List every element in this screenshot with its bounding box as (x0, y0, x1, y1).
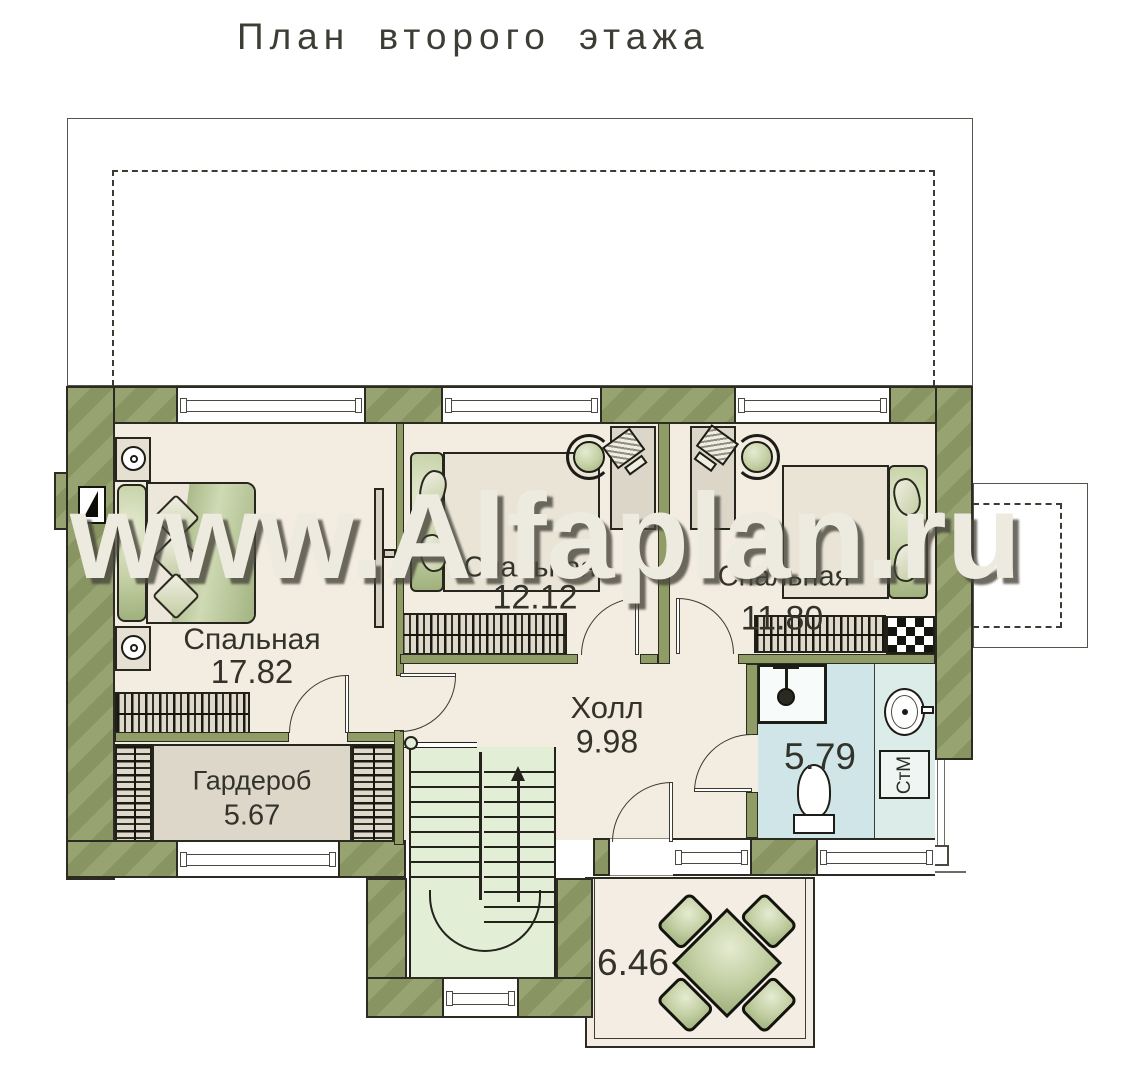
page-title: План второго этажа (237, 16, 710, 58)
window (673, 838, 750, 876)
partition-wall (738, 654, 935, 664)
wall (66, 386, 115, 880)
window (444, 977, 517, 1018)
room-area: 5.67 (224, 800, 280, 833)
door-leaf (400, 673, 456, 677)
roof-dashed-line (112, 170, 935, 386)
window (736, 386, 889, 424)
lamp-icon (121, 635, 146, 660)
door-leaf (676, 598, 680, 654)
door-leaf (345, 675, 349, 733)
door-leaf (669, 782, 673, 842)
partition-wall (640, 654, 658, 664)
clothes-rail (115, 692, 250, 734)
wall (517, 977, 593, 1018)
wall (66, 840, 178, 878)
room-label: Гардероб (193, 766, 312, 797)
wall (338, 840, 406, 878)
partition-wall (746, 792, 758, 838)
partition-wall (115, 732, 289, 742)
wall (364, 386, 443, 424)
shower-rose (777, 688, 795, 706)
room-label: Спальная (183, 623, 320, 657)
faucet-icon (921, 706, 934, 714)
stair-arrow-head (511, 766, 525, 781)
stair-arrow-shaft (517, 780, 520, 902)
railing-line (937, 760, 945, 852)
stair-newel-post (404, 736, 418, 750)
clothes-rail (115, 744, 152, 843)
wall (366, 977, 444, 1018)
toilet-tank (793, 814, 835, 834)
wall-bump (54, 472, 68, 530)
partition-wall (746, 664, 758, 735)
stair-divider (479, 752, 482, 900)
wall (750, 838, 818, 876)
door-leaf (694, 788, 752, 792)
floor-plan-page: План второго этажа (0, 0, 1137, 1080)
window (178, 840, 338, 878)
shelf-unit (886, 616, 935, 654)
room-area: 9.98 (576, 724, 638, 761)
window (818, 838, 935, 876)
room-area: 6.46 (597, 942, 669, 984)
partition-wall (394, 730, 404, 845)
sink (884, 688, 925, 736)
door-opening (610, 838, 673, 876)
wall (600, 386, 736, 424)
wall (593, 838, 610, 876)
washing-machine: СтМ (879, 750, 930, 799)
partition-wall (400, 654, 578, 664)
washing-machine-label: СтМ (894, 755, 916, 793)
clothes-rail (352, 744, 394, 843)
room-area: 17.82 (211, 653, 294, 691)
window (443, 386, 600, 424)
room-area: 5.79 (784, 736, 856, 778)
room-label: Холл (570, 690, 643, 726)
window (178, 386, 364, 424)
stair-steps-left (411, 758, 479, 890)
clothes-rail (400, 613, 567, 655)
door-leaf (635, 598, 639, 655)
watermark: www.Alfaplan.ru (70, 466, 1021, 606)
